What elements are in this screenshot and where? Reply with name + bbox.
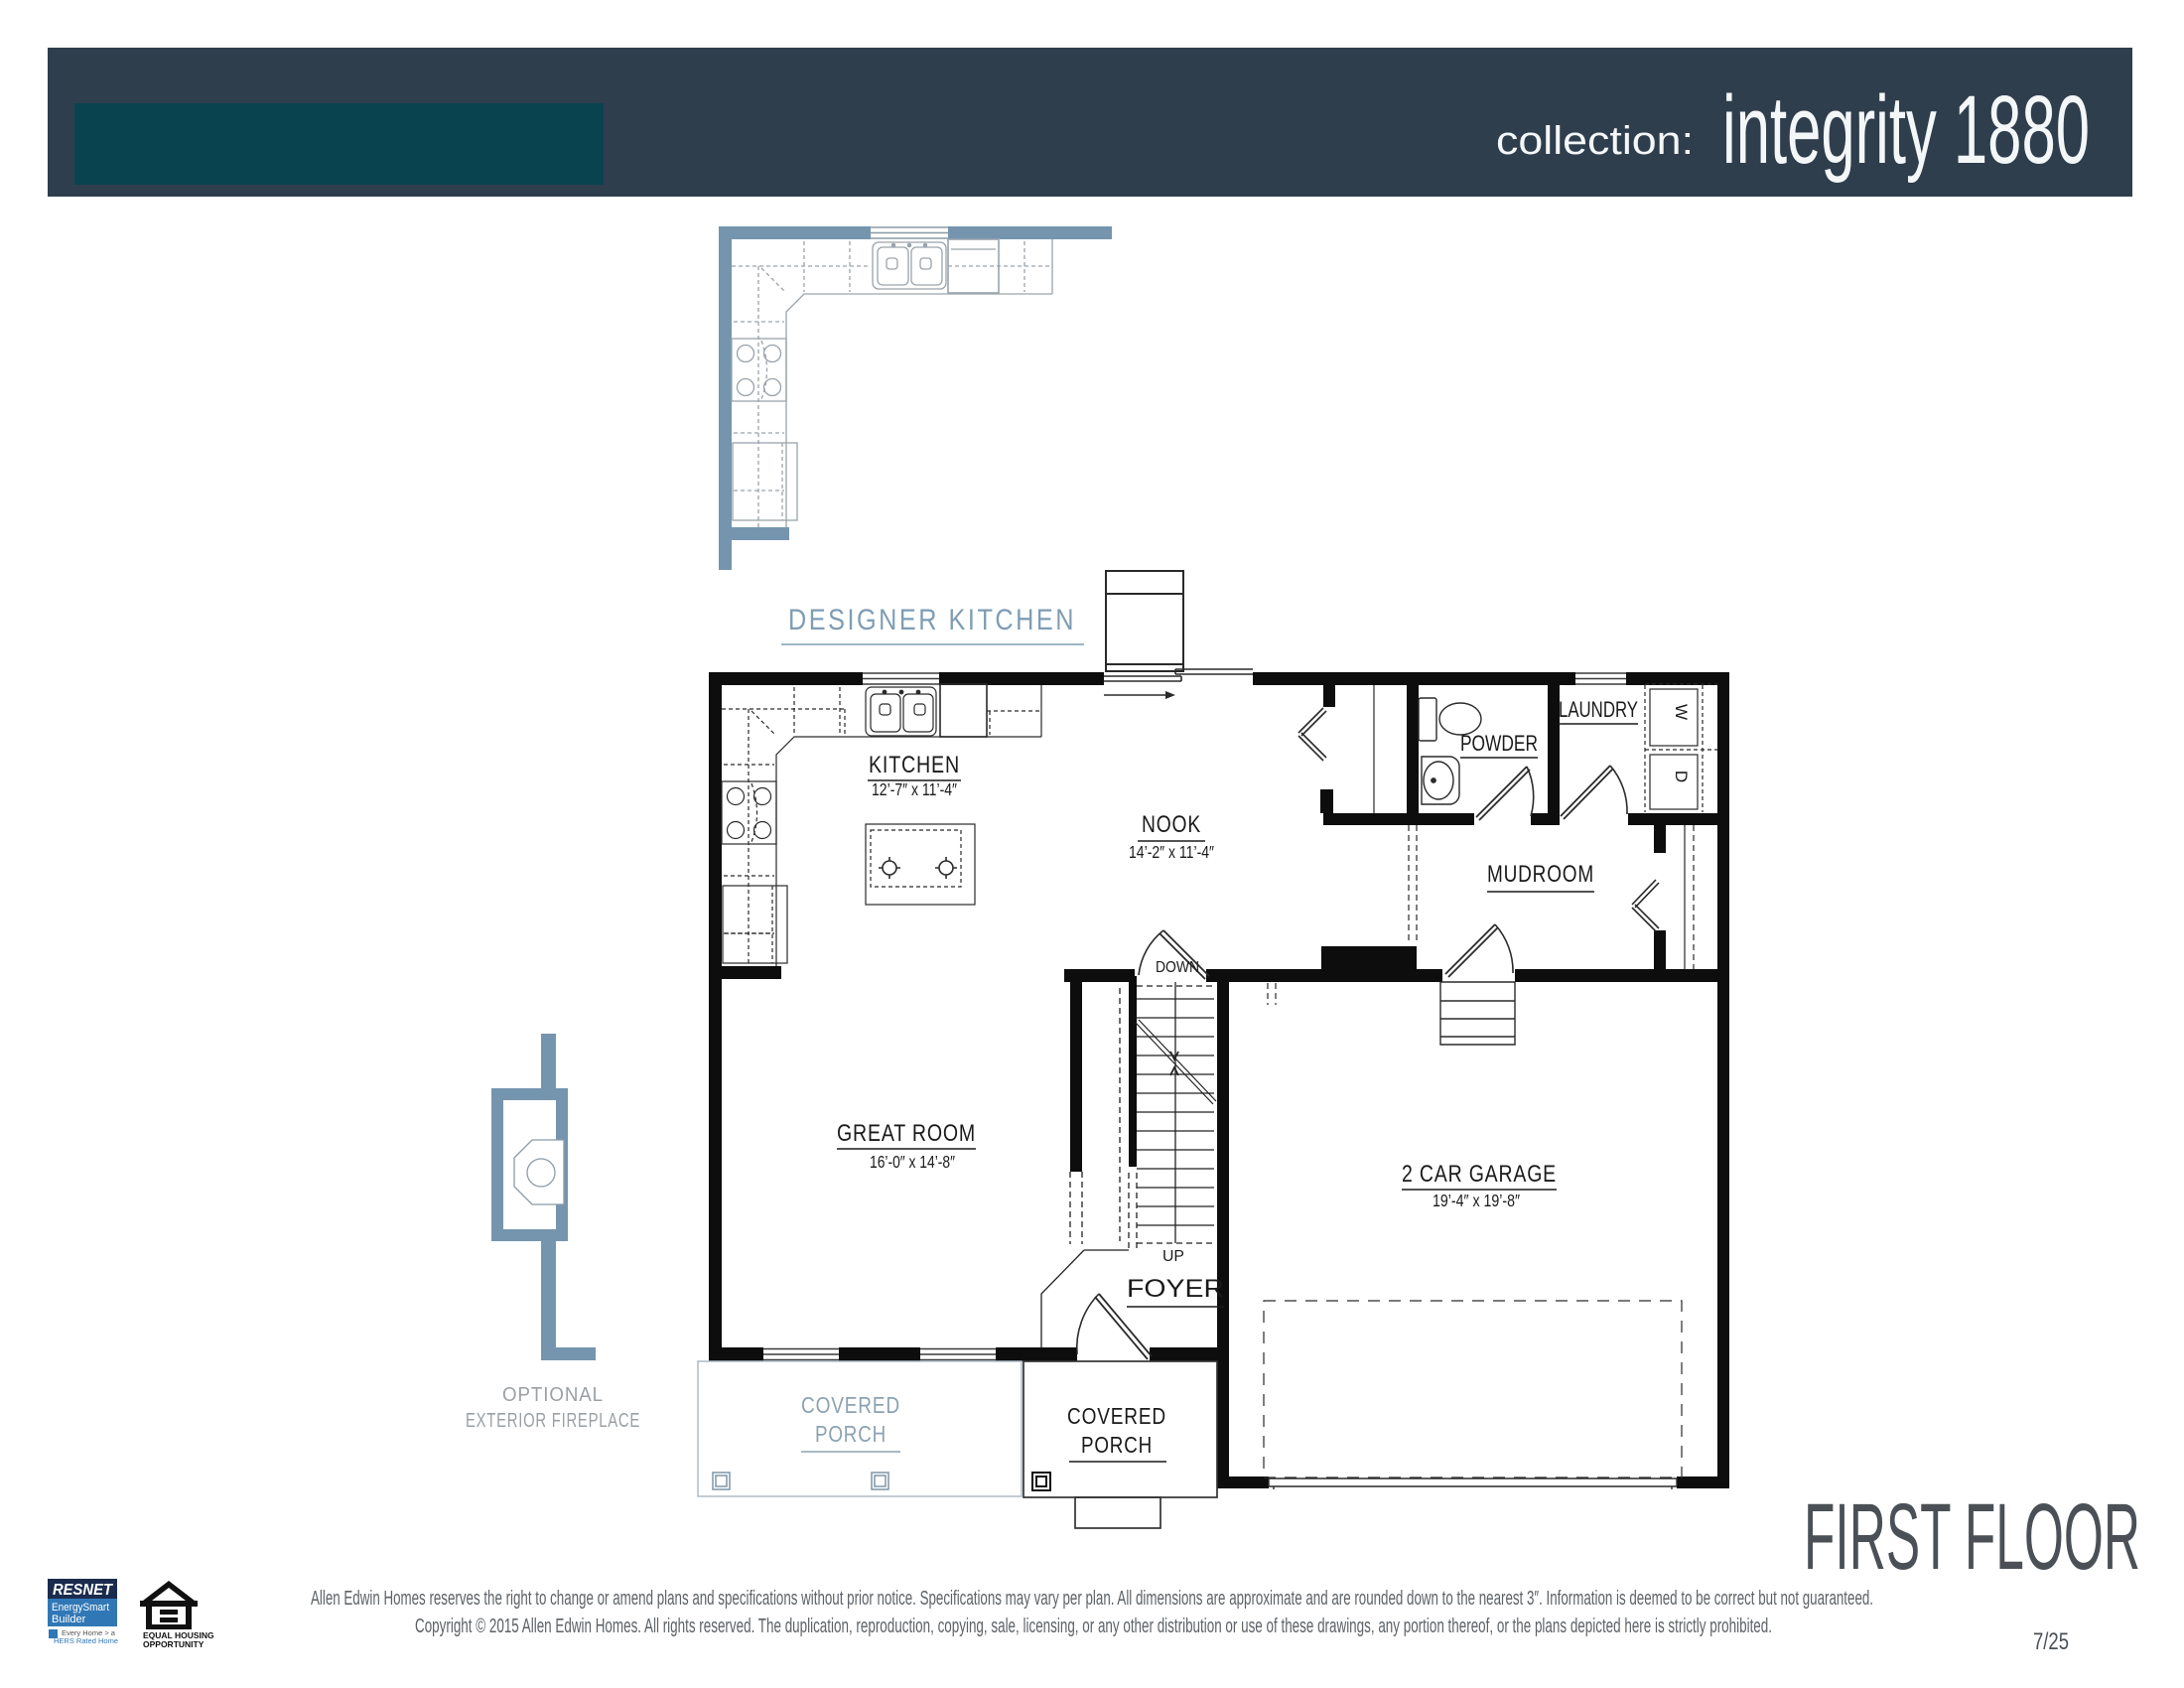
svg-text:OPPORTUNITY: OPPORTUNITY: [143, 1639, 205, 1649]
svg-text:COVERED: COVERED: [801, 1392, 900, 1418]
svg-text:FIRST FLOOR: FIRST FLOOR: [1804, 1484, 2140, 1590]
svg-text:7/25: 7/25: [2033, 1628, 2069, 1655]
svg-text:EXTERIOR FIREPLACE: EXTERIOR FIREPLACE: [466, 1410, 640, 1432]
svg-text:MUDROOM: MUDROOM: [1487, 861, 1594, 888]
svg-text:PORCH: PORCH: [815, 1421, 887, 1447]
svg-text:GREAT ROOM: GREAT ROOM: [837, 1120, 976, 1147]
svg-text:DESIGNER KITCHEN: DESIGNER KITCHEN: [788, 604, 1076, 636]
svg-text:D: D: [1672, 771, 1691, 782]
svg-text:PORCH: PORCH: [1081, 1432, 1153, 1458]
svg-text:FOYER: FOYER: [1127, 1275, 1224, 1303]
svg-text:Builder: Builder: [52, 1614, 86, 1625]
svg-text:KITCHEN: KITCHEN: [869, 752, 960, 778]
svg-text:POWDER: POWDER: [1460, 731, 1538, 756]
svg-text:DOWN: DOWN: [1156, 959, 1199, 976]
svg-text:HERS Rated Home: HERS Rated Home: [54, 1636, 118, 1645]
svg-text:Copyright © 2015 Allen Edwin H: Copyright © 2015 Allen Edwin Homes. All …: [415, 1616, 1772, 1637]
svg-text:Allen Edwin Homes reserves the: Allen Edwin Homes reserves the right to …: [311, 1588, 1873, 1610]
svg-text:COVERED: COVERED: [1067, 1403, 1166, 1429]
svg-text:12’-7″ x 11’-4″: 12’-7″ x 11’-4″: [872, 779, 957, 799]
svg-text:RESNET: RESNET: [53, 1582, 113, 1599]
svg-text:14’-2″ x 11’-4″: 14’-2″ x 11’-4″: [1129, 842, 1214, 862]
svg-text:EnergySmart: EnergySmart: [52, 1602, 109, 1614]
svg-text:2 CAR GARAGE: 2 CAR GARAGE: [1402, 1161, 1557, 1188]
svg-text:16’-0″ x 14’-8″: 16’-0″ x 14’-8″: [870, 1152, 955, 1172]
svg-text:collection:: collection:: [1496, 119, 1694, 163]
svg-text:W: W: [1672, 704, 1691, 720]
svg-text:NOOK: NOOK: [1142, 811, 1201, 838]
svg-text:19’-4″ x 19’-8″: 19’-4″ x 19’-8″: [1433, 1191, 1520, 1210]
svg-text:LAUNDRY: LAUNDRY: [1559, 697, 1638, 722]
svg-text:integrity 1880: integrity 1880: [1722, 75, 2090, 184]
svg-text:OPTIONAL: OPTIONAL: [502, 1384, 604, 1406]
svg-text:UP: UP: [1162, 1248, 1184, 1265]
